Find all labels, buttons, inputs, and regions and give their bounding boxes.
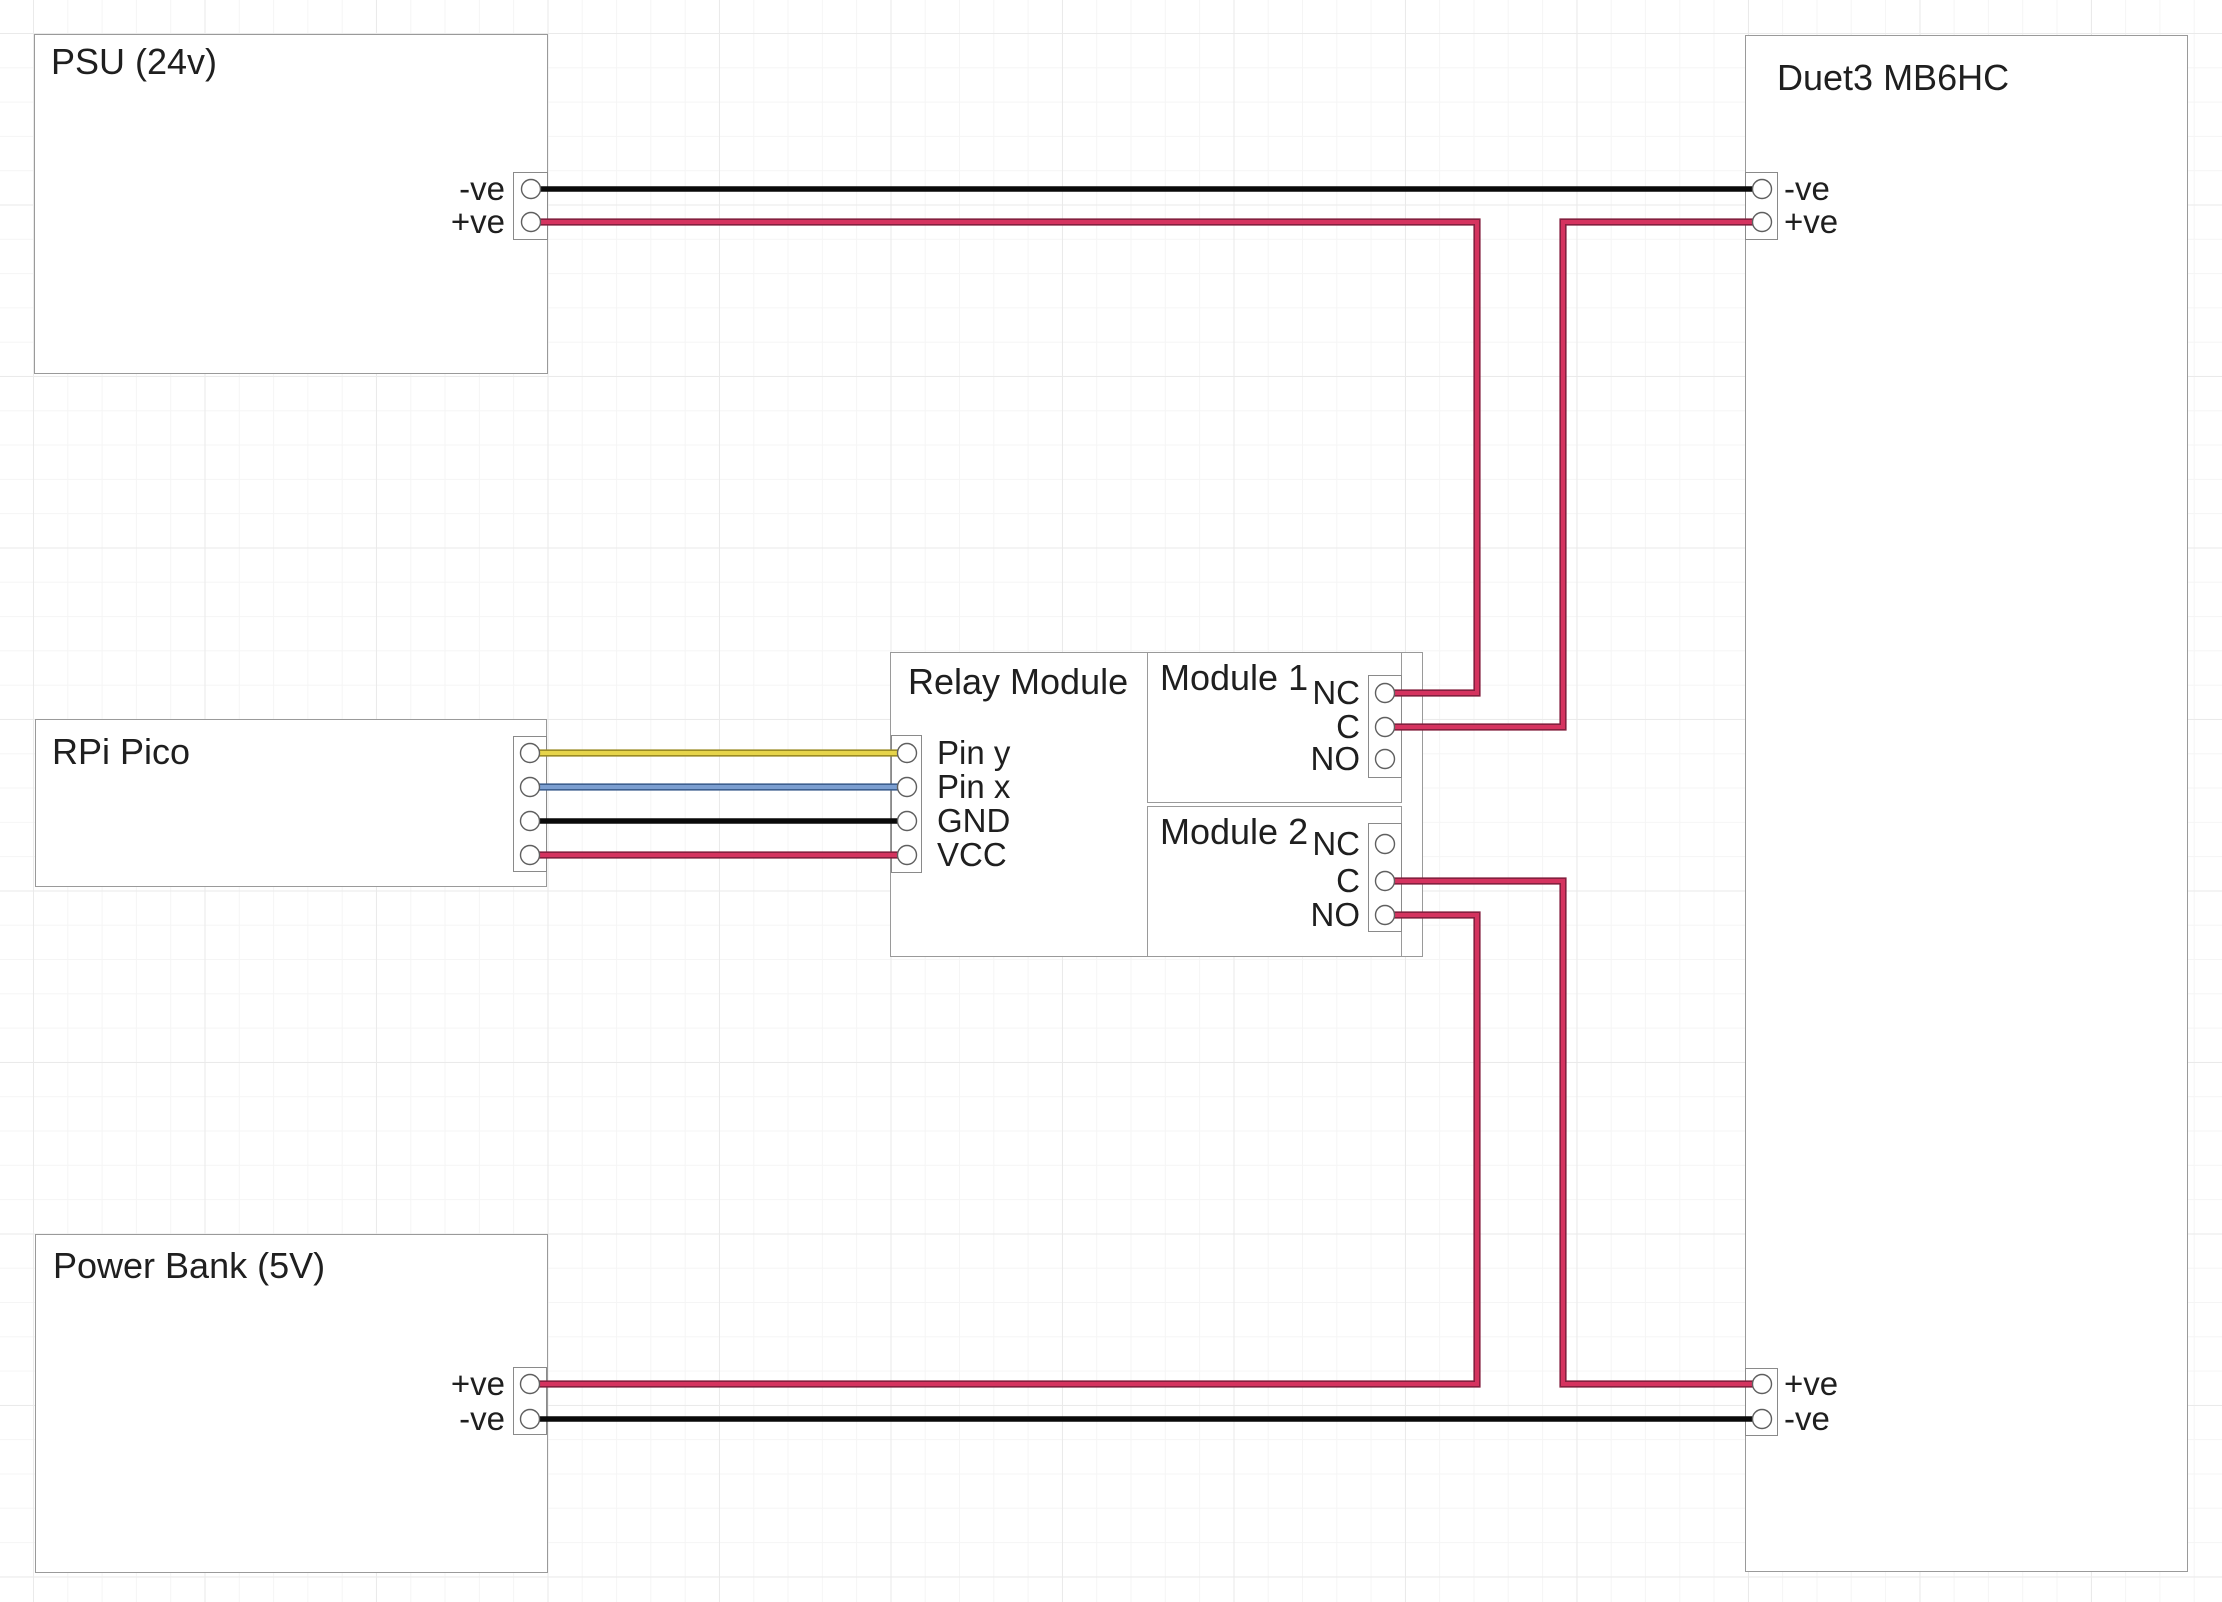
powerbank-neg-label: -ve <box>459 1402 505 1436</box>
relay-pin-y-label: Pin y <box>937 736 1010 770</box>
wire-duet-pos-to-module1-c-edge <box>1389 222 1762 727</box>
duet-bottom-pin-block <box>1745 1368 1778 1436</box>
relay-module-title: Relay Module <box>908 662 1128 702</box>
powerbank-pos-label: +ve <box>451 1367 505 1401</box>
wire-module2-c-to-duet-pos <box>1389 881 1762 1384</box>
module2-no-label: NO <box>1311 898 1361 932</box>
duet-box <box>1745 35 2188 1572</box>
psu-pin-block <box>513 172 548 240</box>
wire-duet-pos-to-module1-c <box>1389 222 1762 727</box>
module2-c-label: C <box>1336 864 1360 898</box>
power-bank-title: Power Bank (5V) <box>53 1246 325 1286</box>
duet-top-pin-block <box>1745 172 1778 240</box>
duet-top-pos-label: +ve <box>1784 205 1838 239</box>
wire-module2-no-to-powerbank-pos <box>531 915 1477 1384</box>
module1-title: Module 1 <box>1160 658 1308 698</box>
duet-bottom-neg-label: -ve <box>1784 1402 1830 1436</box>
wire-psu-pos-to-module1-nc-edge <box>531 222 1477 693</box>
duet-title: Duet3 MB6HC <box>1777 58 2009 98</box>
module2-pin-block <box>1368 823 1402 932</box>
module2-title: Module 2 <box>1160 812 1308 852</box>
wire-psu-pos-to-module1-nc <box>531 222 1477 693</box>
wire-module2-no-to-powerbank-pos-edge <box>531 915 1477 1384</box>
module1-no-label: NO <box>1311 742 1361 776</box>
module1-nc-label: NC <box>1312 676 1360 710</box>
power-bank-pin-block <box>513 1367 547 1435</box>
psu-pin-pos-label: +ve <box>451 205 505 239</box>
relay-vcc-label: VCC <box>937 838 1007 872</box>
duet-bottom-pos-label: +ve <box>1784 1367 1838 1401</box>
module1-c-label: C <box>1336 710 1360 744</box>
relay-pin-x-label: Pin x <box>937 770 1010 804</box>
rpi-title: RPi Pico <box>52 732 190 772</box>
module2-nc-label: NC <box>1312 827 1360 861</box>
psu-title: PSU (24v) <box>51 42 217 82</box>
psu-pin-neg-label: -ve <box>459 172 505 206</box>
diagram-canvas: { "components": { "psu": { "title": "PSU… <box>0 0 2222 1602</box>
duet-top-neg-label: -ve <box>1784 172 1830 206</box>
rpi-pin-block <box>513 736 547 872</box>
relay-gnd-label: GND <box>937 804 1010 838</box>
wire-module2-c-to-duet-pos-edge <box>1389 881 1762 1384</box>
relay-left-pin-block <box>891 735 922 873</box>
module1-pin-block <box>1368 675 1402 778</box>
